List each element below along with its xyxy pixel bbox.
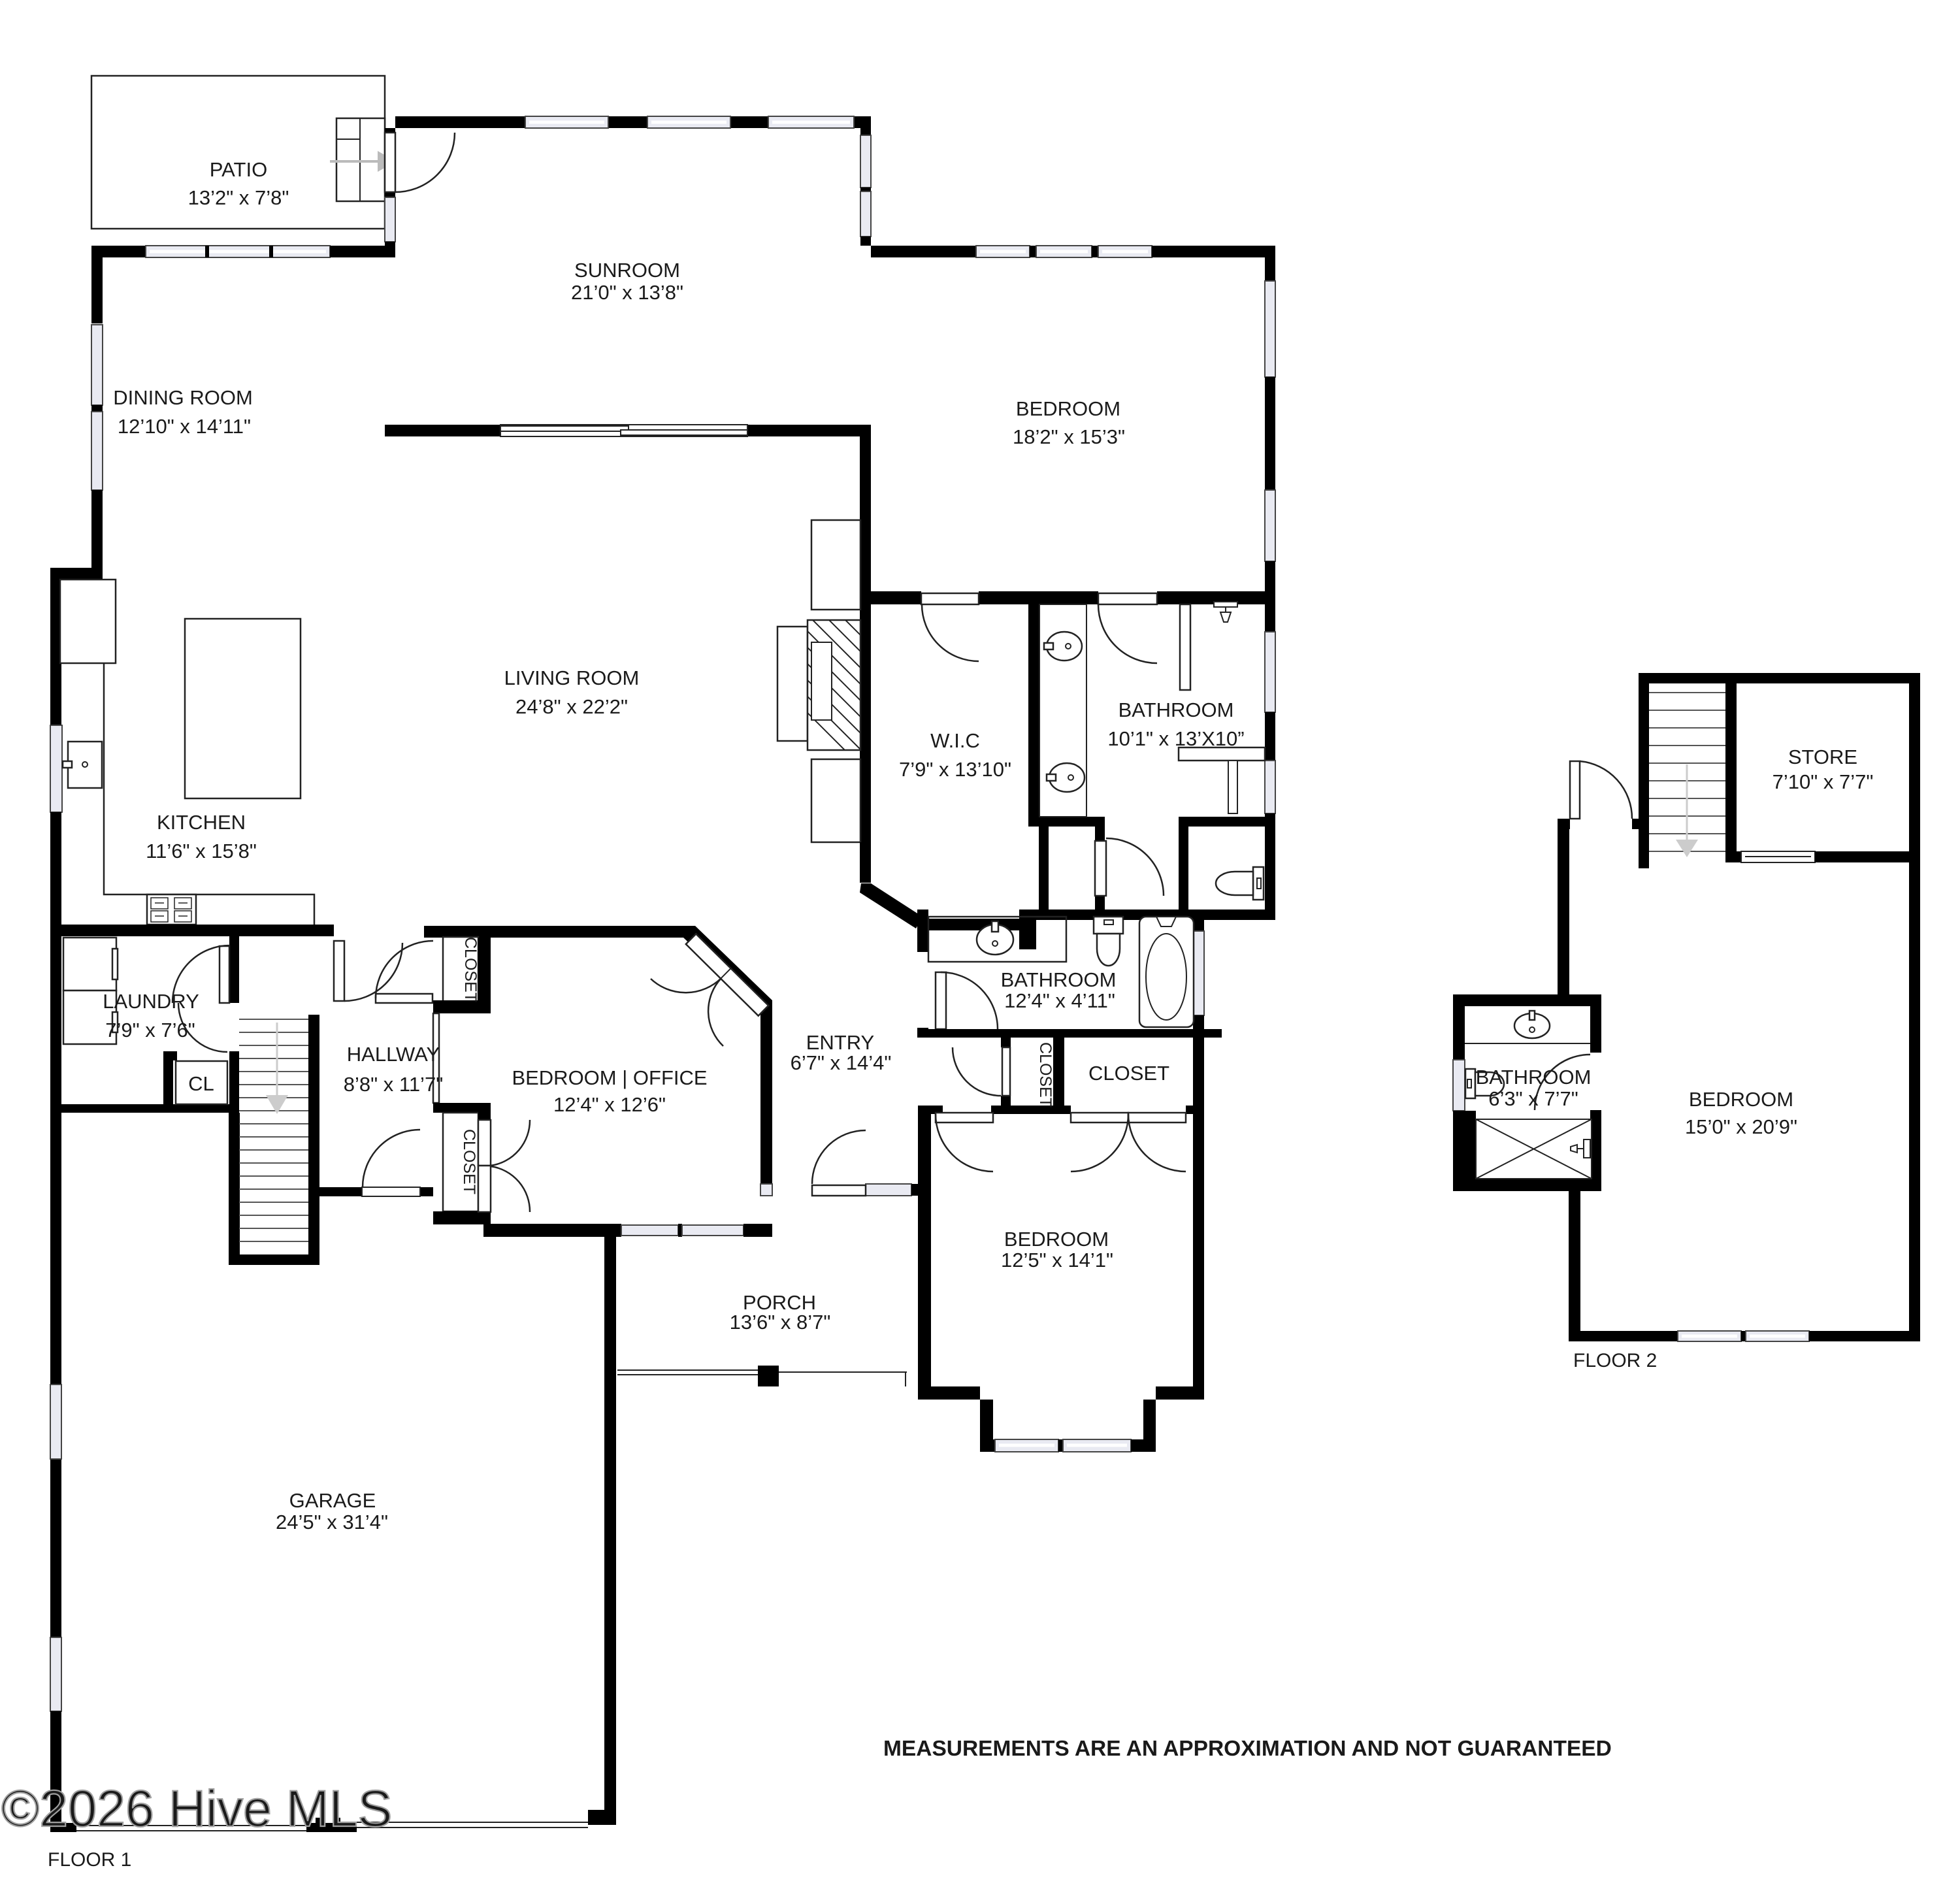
svg-text:11’6" x 15’8": 11’6" x 15’8" — [146, 840, 257, 862]
svg-text:6’3" x 7’7": 6’3" x 7’7" — [1488, 1087, 1578, 1110]
svg-text:BATHROOM: BATHROOM — [1001, 968, 1117, 991]
svg-text:SUNROOM: SUNROOM — [574, 259, 680, 282]
svg-text:W.I.C: W.I.C — [930, 729, 980, 752]
svg-text:PATIO: PATIO — [210, 158, 267, 181]
svg-text:21’0" x 13’8": 21’0" x 13’8" — [571, 281, 683, 304]
svg-text:LIVING ROOM: LIVING ROOM — [504, 666, 640, 689]
svg-text:8’8" x 11’7": 8’8" x 11’7" — [344, 1073, 443, 1096]
svg-text:CLOSET: CLOSET — [461, 937, 480, 1002]
svg-text:CLOSET: CLOSET — [1036, 1042, 1054, 1107]
svg-text:BEDROOM | OFFICE: BEDROOM | OFFICE — [512, 1066, 707, 1089]
svg-text:BEDROOM: BEDROOM — [1004, 1228, 1109, 1251]
svg-text:BEDROOM: BEDROOM — [1689, 1088, 1793, 1111]
svg-text:12’10" x 14’11": 12’10" x 14’11" — [118, 415, 251, 438]
svg-text:LAUNDRY: LAUNDRY — [103, 990, 199, 1013]
svg-text:KITCHEN: KITCHEN — [157, 811, 246, 834]
svg-text:BATHROOM: BATHROOM — [1476, 1066, 1592, 1089]
svg-text:CLOSET: CLOSET — [1088, 1062, 1169, 1085]
svg-text:24’5" x 31’4": 24’5" x 31’4" — [276, 1511, 388, 1533]
svg-text:FLOOR 2: FLOOR 2 — [1573, 1350, 1657, 1371]
svg-text:BATHROOM: BATHROOM — [1119, 698, 1234, 721]
svg-text:7’10" x 7’7": 7’10" x 7’7" — [1772, 770, 1874, 793]
svg-text:FLOOR 1: FLOOR 1 — [48, 1849, 131, 1871]
svg-text:CL: CL — [188, 1072, 214, 1095]
svg-text:12’5" x 14’1": 12’5" x 14’1" — [1001, 1249, 1113, 1271]
svg-text:13’2" x 7’8": 13’2" x 7’8" — [188, 186, 289, 209]
svg-text:6’7" x 14’4": 6’7" x 14’4" — [791, 1051, 892, 1074]
svg-text:10’1" x 13’X10”: 10’1" x 13’X10” — [1107, 727, 1244, 750]
svg-text:24’8" x 22’2": 24’8" x 22’2" — [515, 695, 628, 718]
svg-text:7’9" x 7’6": 7’9" x 7’6" — [105, 1019, 195, 1041]
svg-text:MEASUREMENTS ARE AN APPROXIMAT: MEASUREMENTS ARE AN APPROXIMATION AND NO… — [883, 1737, 1612, 1761]
svg-text:13’6" x 8’7": 13’6" x 8’7" — [730, 1311, 831, 1334]
svg-text:BEDROOM: BEDROOM — [1016, 397, 1120, 420]
svg-text:©2026 Hive MLS: ©2026 Hive MLS — [1, 1779, 392, 1837]
svg-text:CLOSET: CLOSET — [460, 1129, 478, 1194]
svg-text:18’2" x 15’3": 18’2" x 15’3" — [1013, 425, 1125, 448]
svg-text:STORE: STORE — [1788, 746, 1857, 768]
svg-text:GARAGE: GARAGE — [289, 1489, 376, 1512]
svg-text:12’4" x 4’11": 12’4" x 4’11" — [1004, 989, 1115, 1012]
svg-text:ENTRY: ENTRY — [806, 1031, 875, 1054]
svg-text:15’0" x 20’9": 15’0" x 20’9" — [1685, 1115, 1797, 1138]
svg-text:HALLWAY: HALLWAY — [347, 1043, 440, 1066]
svg-text:DINING ROOM: DINING ROOM — [113, 386, 253, 409]
svg-text:12’4" x 12’6": 12’4" x 12’6" — [553, 1093, 666, 1116]
svg-text:7’9" x 13’10": 7’9" x 13’10" — [899, 758, 1011, 781]
